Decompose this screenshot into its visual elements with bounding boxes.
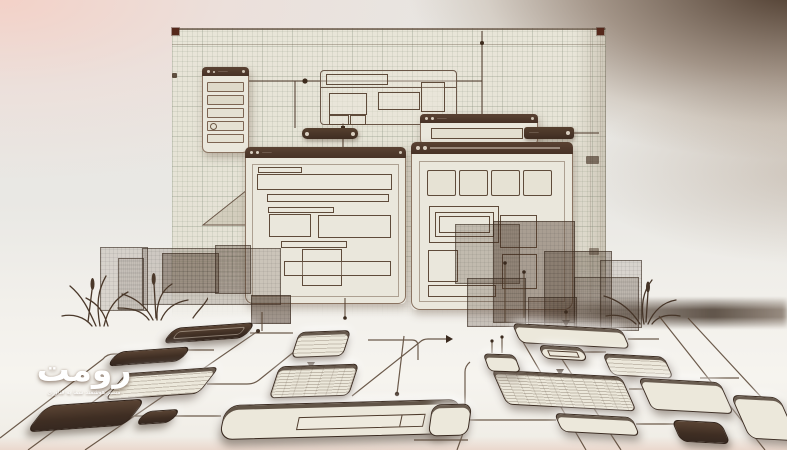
slab-input-outline <box>296 414 426 430</box>
floor-slab-table <box>491 370 637 412</box>
brand-tagline: مسیر هوشمند شما به فناوری <box>26 389 142 396</box>
slab-inner-outline <box>172 327 246 340</box>
wireframe-illustration: ⸻ <box>0 0 787 450</box>
floor-slab-searchbar <box>218 399 462 440</box>
floor-slab-card <box>538 345 588 361</box>
slab-inner-outline <box>547 350 580 358</box>
brand-name: رومت <box>26 352 142 388</box>
floor-slab-card <box>428 404 472 437</box>
floor-slab-connector <box>483 353 522 372</box>
floor-slab-dark <box>671 420 731 445</box>
floor-slab-dark <box>25 399 146 433</box>
floor-slab-dark <box>162 322 257 344</box>
floor-slab-card <box>512 323 631 349</box>
floor-slab-table <box>291 330 351 358</box>
floor-slab-card <box>730 395 787 442</box>
floor-slab-table <box>602 353 674 378</box>
brand-logo: رومت مسیر هوشمند شما به فناوری <box>26 352 142 396</box>
floor-slab-table <box>269 364 359 399</box>
slab-input-button <box>399 415 424 427</box>
floor-slab-card <box>554 413 640 436</box>
floor-slab-card <box>638 378 734 414</box>
floor-slab-dark <box>135 409 182 426</box>
